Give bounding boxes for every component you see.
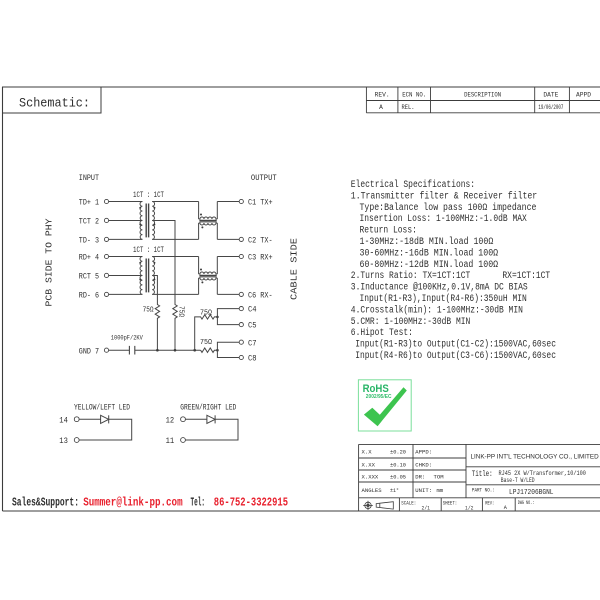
svg-text:2002/95/EC: 2002/95/EC	[366, 394, 392, 400]
svg-text:RD- 6: RD- 6	[79, 291, 99, 301]
svg-text:GREEN/RIGHT LED: GREEN/RIGHT LED	[180, 405, 236, 413]
svg-text:±0.05: ±0.05	[390, 474, 406, 481]
svg-text:1000pF/2KV: 1000pF/2KV	[111, 335, 143, 342]
svg-text:LINK-PP INT'L TECHNOLOGY CO.,: LINK-PP INT'L TECHNOLOGY CO., LIMITED	[471, 453, 599, 460]
svg-text:C7: C7	[248, 338, 257, 348]
svg-text:CHKD:: CHKD:	[415, 462, 432, 469]
svg-text:ECN NO.: ECN NO.	[402, 92, 426, 99]
svg-text:Tel:: Tel:	[191, 495, 206, 509]
svg-text:2.Turns Ratio: TX=1CT:1CT: 2.Turns Ratio: TX=1CT:1CT	[351, 270, 471, 282]
svg-text:YELLOW/LEFT LED: YELLOW/LEFT LED	[74, 405, 130, 413]
svg-text:5.CMR: 1-100MHz:-30dB MIN: 5.CMR: 1-100MHz:-30dB MIN	[351, 316, 471, 328]
svg-text:Schematic:: Schematic:	[19, 96, 90, 111]
svg-text:RX=1CT:1CT: RX=1CT:1CT	[502, 271, 550, 282]
svg-text:REL.: REL.	[402, 104, 415, 111]
svg-text:C2 TX-: C2 TX-	[248, 236, 273, 246]
svg-text:1-30MHz:-18dB MIN.load 100Ω: 1-30MHz:-18dB MIN.load 100Ω	[360, 236, 494, 248]
svg-text:SCALE:: SCALE:	[401, 501, 416, 507]
svg-text:Sales&Support:: Sales&Support:	[12, 495, 79, 509]
svg-text:PART NO.:: PART NO.:	[472, 487, 495, 493]
svg-text:75Ω: 75Ω	[177, 306, 185, 318]
svg-text:ANGLES: ANGLES	[362, 487, 383, 494]
svg-text:C6 RX-: C6 RX-	[248, 291, 273, 301]
svg-text:1CT : 1CT: 1CT : 1CT	[133, 245, 164, 255]
svg-text:APPD: APPD	[576, 92, 591, 99]
svg-text:4.Crosstalk(min): 1-100MHz:-30: 4.Crosstalk(min): 1-100MHz:-30dB MIN	[351, 304, 523, 316]
svg-text:11: 11	[166, 436, 175, 446]
svg-text:C5: C5	[248, 321, 257, 331]
svg-text:REV.: REV.	[375, 92, 390, 99]
svg-text:GND 7: GND 7	[79, 346, 99, 356]
svg-text:CABLE SIDE: CABLE SIDE	[289, 238, 300, 300]
svg-text:DATE: DATE	[543, 92, 558, 99]
svg-text:mm: mm	[437, 487, 444, 494]
svg-text:1CT : 1CT: 1CT : 1CT	[133, 190, 164, 200]
svg-text:C1 TX+: C1 TX+	[248, 198, 273, 208]
svg-text:19/06/2007: 19/06/2007	[538, 104, 563, 111]
svg-text:30-60MHz:-16dB MIN.load 100Ω: 30-60MHz:-16dB MIN.load 100Ω	[360, 247, 499, 259]
svg-text:Insertion Loss: 1-100MHz:-1.0d: Insertion Loss: 1-100MHz:-1.0dB MAX	[360, 213, 527, 225]
svg-text:DESCRIPTION: DESCRIPTION	[464, 92, 501, 99]
svg-text:TOM: TOM	[434, 474, 444, 481]
svg-text:14: 14	[59, 416, 68, 426]
svg-text:X.X: X.X	[362, 449, 373, 456]
svg-text:RD+ 4: RD+ 4	[79, 253, 99, 263]
svg-text:Input(R4-R6)to Output(C3-C6):1: Input(R4-R6)to Output(C3-C6):1500VAC,60s…	[355, 350, 556, 362]
svg-text:LPJ17206BGNL: LPJ17206BGNL	[509, 489, 554, 497]
svg-text:Title:: Title:	[472, 470, 493, 479]
svg-text:75Ω: 75Ω	[200, 339, 213, 347]
svg-text:13: 13	[59, 436, 68, 446]
svg-text:3.Inductance @100KHz,0.1V,8mA: 3.Inductance @100KHz,0.1V,8mA DC BIAS	[351, 282, 528, 294]
svg-text:INPUT: INPUT	[79, 173, 99, 183]
svg-text:UNIT:: UNIT:	[415, 487, 432, 494]
svg-text:DWG NO.:: DWG NO.:	[518, 500, 535, 506]
svg-text:OUTPUT: OUTPUT	[251, 173, 277, 183]
svg-text:Input(R1-R3),Input(R4-R6):350u: Input(R1-R3),Input(R4-R6):350uH MIN	[360, 293, 527, 305]
svg-text:±0.10: ±0.10	[390, 462, 407, 469]
svg-text:60-80MHz:-12dB MIN.load 100Ω: 60-80MHz:-12dB MIN.load 100Ω	[360, 259, 499, 271]
svg-text:C4: C4	[248, 305, 257, 315]
svg-text:75Ω: 75Ω	[200, 309, 213, 317]
svg-text:X.XXX: X.XXX	[362, 474, 379, 481]
svg-text:REV:: REV:	[485, 501, 494, 507]
svg-text:C8: C8	[248, 354, 257, 364]
svg-text:75Ω: 75Ω	[143, 307, 155, 315]
svg-text:PCB SIDE TO PHY: PCB SIDE TO PHY	[44, 218, 55, 306]
svg-text:1.Transmitter filter & Receive: 1.Transmitter filter & Receiver filter	[351, 190, 537, 202]
svg-text:TCT 2: TCT 2	[79, 217, 99, 227]
svg-text:Electrical Specifications:: Electrical Specifications:	[351, 179, 475, 191]
svg-text:12: 12	[166, 416, 175, 426]
svg-text:Return Loss:: Return Loss:	[360, 226, 417, 237]
svg-text:A: A	[379, 104, 383, 111]
svg-text:±1°: ±1°	[390, 487, 399, 494]
svg-text:1/2: 1/2	[465, 505, 474, 511]
svg-text:C3 RX+: C3 RX+	[248, 253, 273, 263]
svg-text:±0.20: ±0.20	[390, 449, 407, 456]
svg-text:APPD:: APPD:	[415, 449, 432, 456]
svg-text:86-752-3322915: 86-752-3322915	[214, 495, 288, 509]
svg-text:Type:Balance low pass 100Ω imp: Type:Balance low pass 100Ω impedance	[360, 202, 537, 214]
svg-text:TD+ 1: TD+ 1	[79, 198, 99, 208]
svg-text:RCT 5: RCT 5	[79, 272, 99, 282]
svg-text:X.XX: X.XX	[362, 462, 376, 469]
svg-text:TD- 3: TD- 3	[79, 236, 99, 246]
svg-text:6.Hipot Test:: 6.Hipot Test:	[351, 327, 413, 339]
svg-text:2/1: 2/1	[422, 505, 431, 511]
svg-text:Summer@link-pp.com: Summer@link-pp.com	[83, 495, 182, 509]
svg-text:DR:: DR:	[415, 474, 425, 481]
svg-text:Base-T W/LED: Base-T W/LED	[501, 477, 535, 484]
svg-text:RJ45 2X W/Transformer,10/100: RJ45 2X W/Transformer,10/100	[499, 470, 587, 477]
svg-text:SHEET:: SHEET:	[443, 501, 458, 507]
svg-text:Input(R1-R3)to Output(C1-C2):1: Input(R1-R3)to Output(C1-C2):1500VAC,60s…	[355, 339, 556, 351]
